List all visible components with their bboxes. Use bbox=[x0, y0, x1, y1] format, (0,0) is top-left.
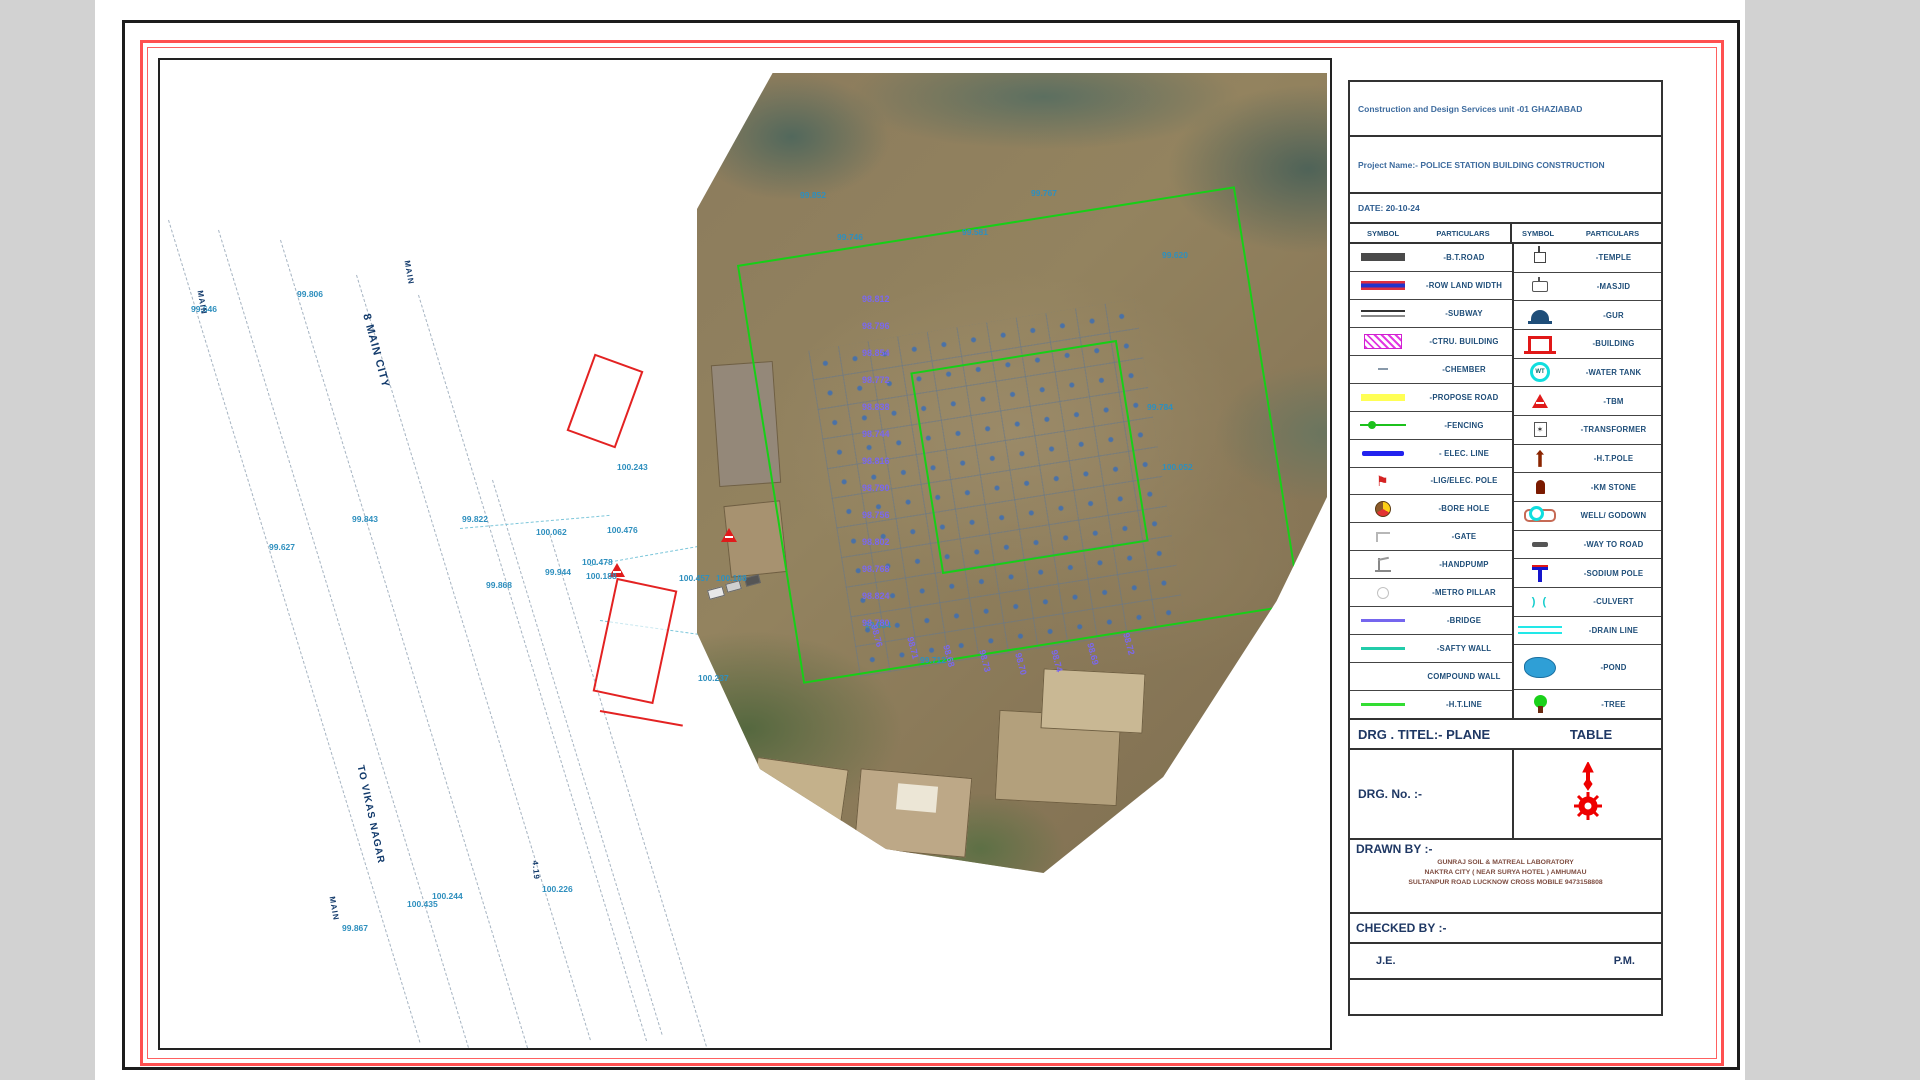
legend-header-particulars: PARTICULARS bbox=[1564, 224, 1661, 242]
legend-symbol-cell bbox=[1350, 473, 1416, 489]
legend-row: -CULVERT bbox=[1514, 588, 1661, 617]
legend-label: -CHEMBER bbox=[1416, 365, 1512, 374]
elevation-value: 100.476 bbox=[607, 525, 638, 535]
legend-row: -ROW LAND WIDTH bbox=[1350, 272, 1512, 300]
legend-row: -SUBWAY bbox=[1350, 300, 1512, 328]
legend-row: -GATE bbox=[1350, 523, 1512, 551]
drawing-title-table: TABLE bbox=[1521, 727, 1661, 742]
drawn-by-line: NAKTRA CITY ( NEAR SURYA HOTEL ) AMHUMAU bbox=[1356, 868, 1655, 878]
elevation-value: 99.784 bbox=[1147, 402, 1173, 412]
legend-symbol-cell bbox=[1350, 394, 1416, 401]
legend-row: -H.T.LINE bbox=[1350, 691, 1512, 718]
road-name-label: MAIN bbox=[403, 260, 416, 286]
tbm-marker bbox=[721, 528, 737, 542]
legend-row: - ELEC. LINE bbox=[1350, 440, 1512, 468]
legend-label: -LIG/ELEC. POLE bbox=[1416, 476, 1512, 485]
drawing-title: DRG . TITEL:- PLANE bbox=[1350, 727, 1521, 742]
water-tank-icon bbox=[1530, 362, 1550, 382]
elevation-value: 100.188 bbox=[586, 571, 617, 581]
grid-elevation-value: 98.796 bbox=[862, 321, 890, 331]
legend-label: -SAFTY WALL bbox=[1416, 644, 1512, 653]
elevation-value: 99.822 bbox=[462, 514, 488, 524]
gate-icon bbox=[1376, 532, 1390, 542]
legend-row: -POND bbox=[1514, 645, 1661, 690]
tree-icon bbox=[1534, 695, 1547, 708]
elevation-value: 99.767 bbox=[1031, 188, 1057, 198]
drawing-title-row: DRG . TITEL:- PLANE TABLE bbox=[1350, 720, 1661, 750]
legend-symbol-cell bbox=[1350, 532, 1416, 542]
legend-row: -GUR bbox=[1514, 301, 1661, 330]
bt-road-icon bbox=[1361, 253, 1405, 261]
elec-line-icon bbox=[1362, 451, 1404, 456]
legend-symbol-cell bbox=[1350, 368, 1416, 370]
elevation-value: 100.062 bbox=[536, 527, 567, 537]
legend-header-symbol: SYMBOL bbox=[1350, 224, 1416, 242]
legend-row: -WATER TANK bbox=[1514, 359, 1661, 388]
legend-label: - ELEC. LINE bbox=[1416, 449, 1512, 458]
legend-column-left: -B.T.ROAD-ROW LAND WIDTH-SUBWAY-CTRU. BU… bbox=[1350, 244, 1514, 718]
row-land-width-icon bbox=[1361, 281, 1405, 290]
legend-row: -CHEMBER bbox=[1350, 356, 1512, 384]
title-block-panel: Construction and Design Services unit -0… bbox=[1348, 80, 1663, 1016]
legend-label: -METRO PILLAR bbox=[1416, 588, 1512, 597]
legend-symbol-cell bbox=[1514, 450, 1566, 467]
legend-label: -TEMPLE bbox=[1566, 253, 1661, 262]
legend-symbol-cell bbox=[1514, 394, 1566, 408]
building-roof bbox=[854, 768, 973, 857]
legend-symbol-cell bbox=[1514, 336, 1566, 351]
elevation-value: 99.620 bbox=[1162, 250, 1188, 260]
legend-label: -POND bbox=[1566, 663, 1661, 672]
legend-symbol-cell bbox=[1514, 698, 1566, 711]
north-compass-icon bbox=[1566, 762, 1610, 826]
aerial-photo bbox=[697, 73, 1327, 873]
building-roof bbox=[747, 757, 848, 843]
elevation-value: 100.478 bbox=[582, 557, 613, 567]
legend-row: -TEMPLE bbox=[1514, 244, 1661, 273]
legend-row: -DRAIN LINE bbox=[1514, 617, 1661, 646]
grid-elevation-value: 98.772 bbox=[862, 375, 890, 385]
legend-label: -PROPOSE ROAD bbox=[1416, 393, 1512, 402]
legend-symbol-cell bbox=[1350, 619, 1416, 622]
legend-label: -B.T.ROAD bbox=[1416, 253, 1512, 262]
grid-elevation-value: 98.812 bbox=[862, 294, 890, 304]
masjid-icon bbox=[1532, 281, 1548, 292]
building-roof bbox=[1040, 668, 1145, 733]
drawn-by-label: DRAWN BY :- bbox=[1356, 842, 1655, 856]
legend-row: -BRIDGE bbox=[1350, 607, 1512, 635]
road-line bbox=[280, 240, 532, 1050]
legend-label: COMPOUND WALL bbox=[1416, 672, 1512, 681]
legend-label: -ROW LAND WIDTH bbox=[1416, 281, 1512, 290]
grid-elevation-value: 98.824 bbox=[862, 591, 890, 601]
legend-row: -PROPOSE ROAD bbox=[1350, 384, 1512, 412]
legend-label: -SUBWAY bbox=[1416, 309, 1512, 318]
legend-symbol-cell bbox=[1350, 334, 1416, 349]
boundary-tick bbox=[600, 710, 683, 727]
legend-row: COMPOUND WALL bbox=[1350, 663, 1512, 691]
legend-label: -BORE HOLE bbox=[1416, 504, 1512, 513]
legend-header-particulars: PARTICULARS bbox=[1416, 224, 1512, 242]
legend-symbol-cell bbox=[1350, 703, 1416, 706]
legend-symbol-cell bbox=[1350, 253, 1416, 261]
legend-label: -SODIUM POLE bbox=[1566, 569, 1661, 578]
legend-symbol-cell bbox=[1514, 281, 1566, 292]
legend-symbol-cell bbox=[1350, 451, 1416, 456]
legend-row: -MASJID bbox=[1514, 273, 1661, 302]
handpump-icon bbox=[1375, 558, 1391, 572]
legend-table: SYMBOL PARTICULARS SYMBOL PARTICULARS -B… bbox=[1350, 224, 1661, 720]
legend-symbol-cell bbox=[1514, 252, 1566, 263]
road-name-label: TO VIKAS NAGAR bbox=[355, 764, 387, 865]
road-line bbox=[168, 220, 420, 1043]
legend-label: -H.T.LINE bbox=[1416, 700, 1512, 709]
legend-label: -CULVERT bbox=[1566, 597, 1661, 606]
drain-line-icon bbox=[1518, 626, 1562, 634]
je-signature-label: J.E. bbox=[1376, 955, 1396, 967]
culvert-icon bbox=[1532, 596, 1548, 608]
legend-symbol-cell bbox=[1350, 424, 1416, 426]
temple-icon bbox=[1534, 252, 1546, 263]
legend-symbol-cell bbox=[1514, 480, 1566, 494]
safty-wall-icon bbox=[1361, 647, 1405, 650]
subway-icon bbox=[1361, 310, 1405, 317]
legend-label: -CTRU. BUILDING bbox=[1416, 337, 1512, 346]
grid-elevation-value: 98.756 bbox=[862, 510, 890, 520]
pond-icon bbox=[1524, 657, 1556, 678]
checked-by-label: CHECKED BY :- bbox=[1350, 914, 1661, 944]
approval-row: J.E. P.M. bbox=[1350, 944, 1661, 980]
ht-line-icon bbox=[1361, 703, 1405, 706]
legend-symbol-cell bbox=[1514, 626, 1566, 634]
tbm-icon bbox=[1532, 394, 1548, 408]
legend-label: -KM STONE bbox=[1566, 483, 1661, 492]
legend-symbol-cell bbox=[1514, 362, 1566, 382]
inner-boundary-green bbox=[910, 340, 1148, 574]
legend-label: -GATE bbox=[1416, 532, 1512, 541]
legend-row: -HANDPUMP bbox=[1350, 551, 1512, 579]
legend-symbol-cell bbox=[1514, 657, 1566, 678]
sodium-pole-icon bbox=[1532, 565, 1548, 582]
legend-row: -TBM bbox=[1514, 387, 1661, 416]
legend-row: -WAY TO ROAD bbox=[1514, 531, 1661, 560]
compound-wall-icon bbox=[1383, 676, 1384, 677]
drawing-sheet: 99.80699.64699.627100.243100.062100.4769… bbox=[0, 0, 1920, 1080]
legend-label: -WAY TO ROAD bbox=[1566, 540, 1661, 549]
legend-symbol-cell bbox=[1350, 310, 1416, 317]
drawn-by-row: DRAWN BY :- GUNRAJ SOIL & MATREAL LABORA… bbox=[1350, 840, 1661, 914]
legend-row: -TREE bbox=[1514, 690, 1661, 718]
plotted-building bbox=[593, 578, 678, 704]
legend-label: WELL/ GODOWN bbox=[1566, 511, 1661, 520]
building-roof bbox=[896, 783, 938, 812]
elevation-value: 100.435 bbox=[407, 899, 438, 909]
grid-elevation-value: 98.802 bbox=[862, 537, 890, 547]
elevation-value: 99.627 bbox=[269, 542, 295, 552]
legend-row: -CTRU. BUILDING bbox=[1350, 328, 1512, 356]
legend-row: WELL/ GODOWN bbox=[1514, 502, 1661, 531]
metro-pillar-icon bbox=[1377, 587, 1389, 599]
legend-symbol-cell bbox=[1514, 422, 1566, 437]
road-name-label: 8 MAIN CITY bbox=[360, 312, 391, 389]
km-stone-icon bbox=[1536, 480, 1545, 494]
legend-row: -KM STONE bbox=[1514, 473, 1661, 502]
legend-symbol-cell bbox=[1350, 647, 1416, 650]
elevation-value: 99.806 bbox=[297, 289, 323, 299]
legend-symbol-cell bbox=[1350, 676, 1416, 677]
chember-icon bbox=[1378, 368, 1388, 370]
elevation-value: 99.581 bbox=[962, 227, 988, 237]
site-plan-area: 99.80699.64699.627100.243100.062100.4769… bbox=[158, 58, 1332, 1050]
elevation-value: 100.226 bbox=[542, 884, 573, 894]
bridge-icon bbox=[1361, 619, 1405, 622]
north-compass-cell bbox=[1514, 750, 1661, 838]
road-line bbox=[492, 480, 663, 1035]
building-icon bbox=[1528, 336, 1552, 351]
elec-pole-icon bbox=[1376, 473, 1390, 489]
grid-elevation-value: 98.838 bbox=[862, 402, 890, 412]
drawn-by-line: GUNRAJ SOIL & MATREAL LABORATORY bbox=[1356, 858, 1655, 868]
legend-symbol-cell bbox=[1514, 310, 1566, 321]
legend-row: -METRO PILLAR bbox=[1350, 579, 1512, 607]
elevation-value: 99.867 bbox=[342, 923, 368, 933]
legend-label: -TREE bbox=[1566, 700, 1661, 709]
drawing-date: DATE: 20-10-24 bbox=[1350, 194, 1661, 224]
grid-elevation-value: 98.744 bbox=[862, 429, 890, 439]
way-to-road-icon bbox=[1532, 542, 1548, 547]
pm-signature-label: P.M. bbox=[1614, 955, 1635, 967]
elevation-value: 99.843 bbox=[352, 514, 378, 524]
grid-elevation-value: 98.854 bbox=[862, 348, 890, 358]
ctru-building-icon bbox=[1364, 334, 1402, 349]
grid-elevation-value: 98.768 bbox=[862, 564, 890, 574]
elevation-value: 99.852 bbox=[800, 190, 826, 200]
road-name-label: 4.19 bbox=[531, 860, 542, 880]
elevation-value: 99.712 bbox=[920, 655, 946, 665]
legend-label: -WATER TANK bbox=[1566, 368, 1661, 377]
legend-row: -BORE HOLE bbox=[1350, 495, 1512, 523]
legend-header-symbol: SYMBOL bbox=[1512, 224, 1564, 242]
legend-row: -B.T.ROAD bbox=[1350, 244, 1512, 272]
legend-label: -TRANSFORMER bbox=[1566, 425, 1661, 434]
legend-column-right: -TEMPLE-MASJID-GUR-BUILDING-WATER TANK-T… bbox=[1514, 244, 1661, 718]
bore-hole-icon bbox=[1375, 501, 1391, 517]
legend-row: -SODIUM POLE bbox=[1514, 559, 1661, 588]
gur-icon bbox=[1531, 310, 1549, 321]
elevation-value: 100.052 bbox=[1162, 462, 1193, 472]
elevation-value: 99.746 bbox=[837, 232, 863, 242]
drawn-by-line: SULTANPUR ROAD LUCKNOW CROSS MOBILE 9473… bbox=[1356, 878, 1655, 888]
legend-label: -H.T.POLE bbox=[1566, 454, 1661, 463]
well-godown-icon bbox=[1524, 509, 1556, 522]
legend-label: -BRIDGE bbox=[1416, 616, 1512, 625]
fencing-icon bbox=[1360, 424, 1406, 426]
drg-no-label: DRG. No. :- bbox=[1350, 750, 1514, 838]
legend-row: -SAFTY WALL bbox=[1350, 635, 1512, 663]
plotted-building bbox=[567, 354, 644, 449]
road-line bbox=[356, 275, 591, 1040]
legend-label: -TBM bbox=[1566, 397, 1661, 406]
elevation-value: 100.188 bbox=[716, 573, 747, 583]
legend-symbol-cell bbox=[1350, 501, 1416, 517]
legend-symbol-cell bbox=[1514, 542, 1566, 547]
legend-row: -LIG/ELEC. POLE bbox=[1350, 468, 1512, 496]
legend-label: -MASJID bbox=[1566, 282, 1661, 291]
legend-label: -GUR bbox=[1566, 311, 1661, 320]
legend-symbol-cell bbox=[1350, 281, 1416, 290]
ht-pole-icon bbox=[1536, 450, 1544, 467]
legend-label: -DRAIN LINE bbox=[1566, 626, 1661, 635]
signature-empty-box bbox=[1350, 980, 1661, 1014]
legend-header: SYMBOL PARTICULARS SYMBOL PARTICULARS bbox=[1350, 224, 1661, 244]
legend-row: -H.T.POLE bbox=[1514, 445, 1661, 474]
elevation-value: 99.944 bbox=[545, 567, 571, 577]
elevation-value: 100.457 bbox=[679, 573, 710, 583]
legend-symbol-cell bbox=[1514, 565, 1566, 582]
grid-elevation-value: 98.816 bbox=[862, 456, 890, 466]
road-name-label: MAIN bbox=[328, 896, 341, 922]
elevation-value: 99.868 bbox=[486, 580, 512, 590]
legend-label: -HANDPUMP bbox=[1416, 560, 1512, 569]
propose-road-icon bbox=[1361, 394, 1405, 401]
grid-elevation-value: 98.790 bbox=[862, 483, 890, 493]
drawing-number-row: DRG. No. :- bbox=[1350, 750, 1661, 840]
legend-row: -TRANSFORMER bbox=[1514, 416, 1661, 445]
legend-symbol-cell bbox=[1350, 587, 1416, 599]
legend-row: -FENCING bbox=[1350, 412, 1512, 440]
legend-row: -BUILDING bbox=[1514, 330, 1661, 359]
elevation-value: 100.243 bbox=[617, 462, 648, 472]
project-name: Project Name:- POLICE STATION BUILDING C… bbox=[1350, 137, 1661, 194]
elevation-value: 100.237 bbox=[698, 673, 729, 683]
organisation-title: Construction and Design Services unit -0… bbox=[1350, 82, 1661, 137]
legend-label: -FENCING bbox=[1416, 421, 1512, 430]
legend-symbol-cell bbox=[1514, 596, 1566, 608]
transformer-icon bbox=[1534, 422, 1547, 437]
legend-symbol-cell bbox=[1350, 558, 1416, 572]
legend-symbol-cell bbox=[1514, 509, 1566, 522]
legend-label: -BUILDING bbox=[1566, 339, 1661, 348]
